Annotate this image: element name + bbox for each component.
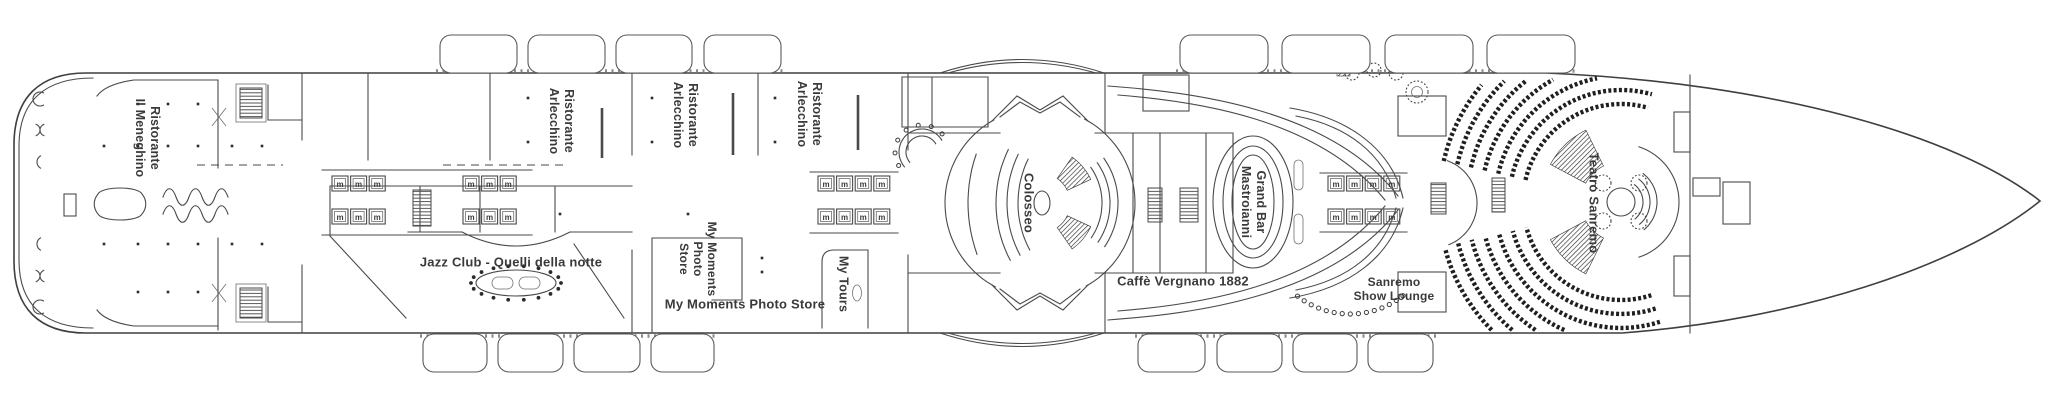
svg-text:m: m <box>860 180 867 189</box>
svg-text:m: m <box>505 180 512 189</box>
label-jazz-club: Jazz Club - Quelli della notte <box>420 254 602 269</box>
lifeboat <box>1293 334 1357 372</box>
stairs-icon <box>240 288 262 318</box>
lifeboat <box>498 334 563 372</box>
svg-text:m: m <box>1332 213 1339 222</box>
svg-text:m: m <box>1332 180 1339 189</box>
svg-text:m: m <box>486 213 493 222</box>
label-line: Arlecchino <box>794 81 809 148</box>
label-line: Arlecchino <box>670 82 685 149</box>
label-line: Il Meneghino <box>132 99 147 178</box>
svg-text:m: m <box>1388 213 1395 222</box>
label-colosseo: Colosseo <box>1021 173 1036 233</box>
stairs-icon <box>240 88 262 118</box>
lifeboat <box>1138 334 1205 372</box>
lifeboat <box>528 35 605 73</box>
label-line: Arlecchino <box>546 88 561 155</box>
svg-text:m: m <box>1370 213 1377 222</box>
svg-text:m: m <box>505 213 512 222</box>
svg-text:m: m <box>1351 213 1358 222</box>
lifeboat <box>440 35 517 73</box>
svg-text:m: m <box>355 180 362 189</box>
svg-text:m: m <box>841 213 848 222</box>
lifeboat <box>1180 35 1268 73</box>
svg-text:m: m <box>336 180 343 189</box>
label-line: Photo <box>691 222 705 297</box>
lifeboat <box>1368 334 1433 372</box>
lifeboat <box>1385 35 1473 73</box>
lifeboat <box>651 334 714 372</box>
svg-text:m: m <box>374 180 381 189</box>
label-ristorante-arlecchino-1: Ristorante Arlecchino <box>546 88 576 155</box>
label-line: Ristorante <box>561 88 576 155</box>
lifeboat <box>1217 334 1282 372</box>
label-line: Ristorante <box>809 81 824 148</box>
svg-text:m: m <box>355 213 362 222</box>
lifeboat <box>616 35 692 73</box>
label-line: Ristorante <box>147 99 162 178</box>
svg-text:m: m <box>860 213 867 222</box>
label-my-tours: My Tours <box>836 256 851 312</box>
stairs-icon <box>413 190 431 226</box>
stairs-icon <box>1431 183 1446 214</box>
svg-text:m: m <box>374 213 381 222</box>
label-line: Ristorante <box>685 82 700 149</box>
svg-text:m: m <box>878 180 885 189</box>
svg-text:m: m <box>467 213 474 222</box>
svg-text:m: m <box>1388 180 1395 189</box>
svg-text:m: m <box>878 213 885 222</box>
svg-text:m: m <box>841 180 848 189</box>
lifeboat <box>574 334 640 372</box>
svg-text:m: m <box>467 180 474 189</box>
svg-text:m: m <box>822 213 829 222</box>
label-line: Grand Bar <box>1253 166 1268 238</box>
label-line: Mastroianni <box>1238 166 1253 238</box>
lifeboat <box>704 35 781 73</box>
label-line: Show Lounge <box>1354 289 1435 303</box>
label-my-moments-horizontal: My Moments Photo Store <box>665 296 825 311</box>
label-ristorante-il-meneghino: Ristorante Il Meneghino <box>132 99 162 178</box>
label-sanremo-show-lounge: Sanremo Show Lounge <box>1354 275 1435 303</box>
label-line: My Moments <box>705 222 719 297</box>
stairs-icon <box>1148 188 1162 222</box>
stairs-icon <box>1180 188 1198 222</box>
label-caffe-vergnano: Caffè Vergnano 1882 <box>1117 273 1249 288</box>
label-teatro-sanremo: Teatro Sanremo <box>1586 153 1601 254</box>
svg-text:m: m <box>486 180 493 189</box>
lifeboat <box>1282 35 1370 73</box>
stairs-icon <box>1492 178 1505 212</box>
svg-text:m: m <box>1370 180 1377 189</box>
lifeboat <box>423 334 487 372</box>
svg-text:m: m <box>336 213 343 222</box>
label-my-moments-vertical: My Moments Photo Store <box>677 222 719 297</box>
label-grand-bar-mastroianni: Grand Bar Mastroianni <box>1238 166 1268 238</box>
deck-plan: mmmmmmmmmmmmmmmmmmmmmmmmmmmm Ristorante … <box>0 0 2048 409</box>
label-ristorante-arlecchino-2: Ristorante Arlecchino <box>670 82 700 149</box>
label-line: Store <box>677 222 691 297</box>
lifeboat <box>1487 35 1575 73</box>
label-line: Sanremo <box>1354 275 1435 289</box>
label-ristorante-arlecchino-3: Ristorante Arlecchino <box>794 81 824 148</box>
svg-text:m: m <box>822 180 829 189</box>
svg-text:m: m <box>1351 180 1358 189</box>
